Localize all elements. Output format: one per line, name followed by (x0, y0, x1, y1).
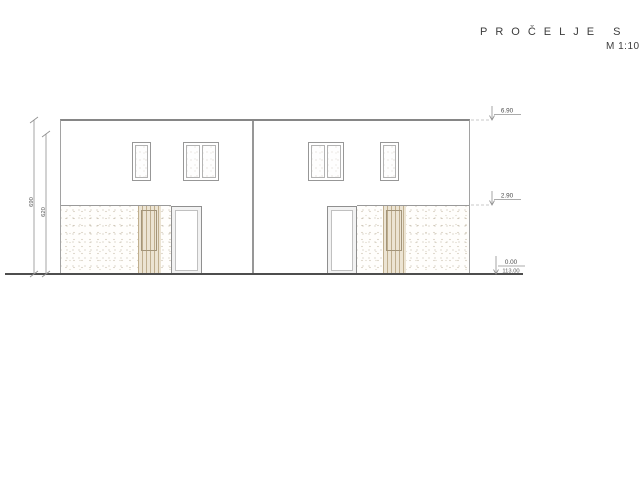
level-marker-ground: 0.00 113.00 (494, 256, 526, 275)
dimension-line-upper: 620 (41, 131, 50, 277)
level-value-ground: 0.00 (505, 259, 518, 266)
level-marker-floor: 2.90 (471, 191, 521, 205)
dimension-label-total: 690 (29, 197, 35, 207)
level-absolute-ground: 113.00 (502, 269, 519, 275)
level-value-floor: 2.90 (501, 193, 514, 200)
facade-drawing-canvas: PROČELJE S M 1:100 (0, 0, 640, 480)
level-value-roof: 6.90 (501, 108, 514, 115)
annotation-overlay: 690 620 6.90 2.90 (0, 0, 640, 480)
dimension-line-total: 690 (29, 117, 38, 277)
level-marker-roof: 6.90 (471, 106, 521, 120)
dimension-label-upper: 620 (41, 207, 47, 217)
